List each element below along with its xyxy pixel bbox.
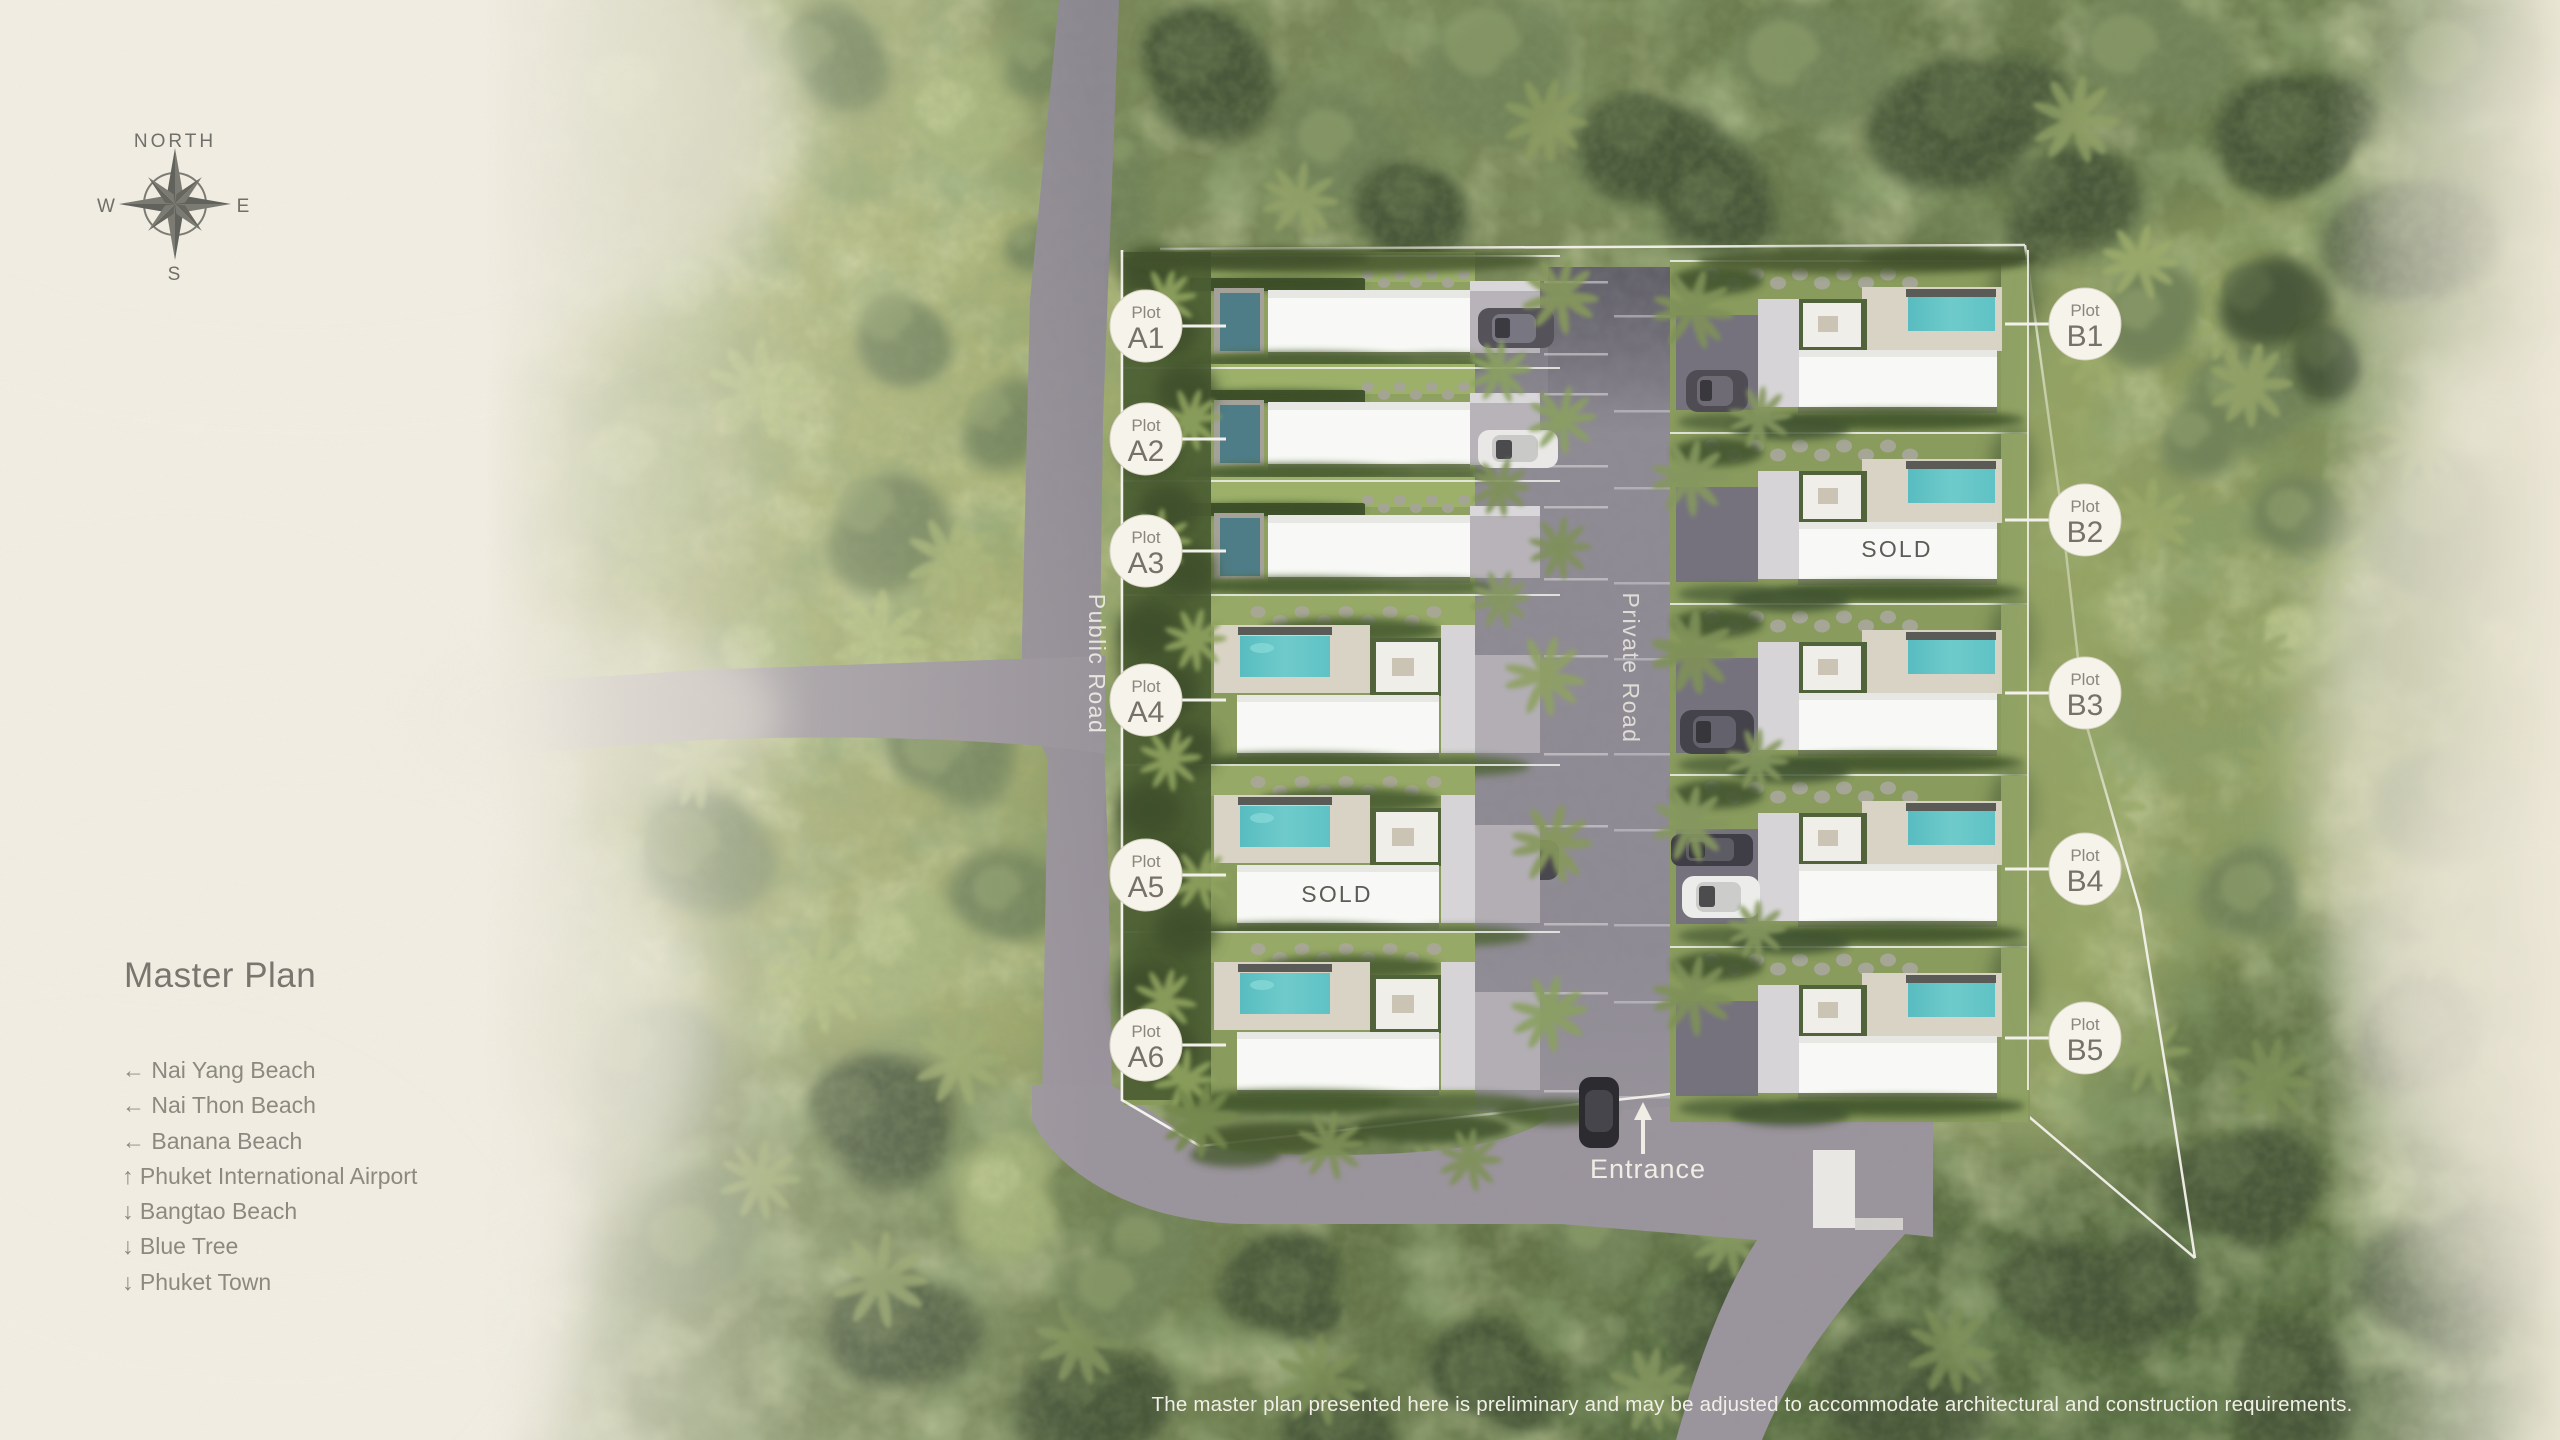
svg-text:B1: B1: [2067, 320, 2104, 353]
svg-text:Entrance: Entrance: [1590, 1154, 1706, 1184]
svg-text:A2: A2: [1128, 435, 1165, 468]
svg-text:SOLD: SOLD: [1301, 881, 1372, 907]
svg-text:B3: B3: [2067, 689, 2104, 722]
svg-text:Plot: Plot: [1131, 528, 1161, 547]
svg-text:Plot: Plot: [2070, 1015, 2100, 1034]
svg-text:↓ Bangtao Beach: ↓ Bangtao Beach: [122, 1198, 297, 1224]
svg-text:Plot: Plot: [1131, 677, 1161, 696]
svg-text:Plot: Plot: [2070, 846, 2100, 865]
svg-text:Master Plan: Master Plan: [124, 956, 316, 995]
svg-text:Plot: Plot: [2070, 497, 2100, 516]
svg-text:B4: B4: [2067, 865, 2104, 898]
svg-text:Plot: Plot: [1131, 1022, 1161, 1041]
svg-text:Plot: Plot: [1131, 852, 1161, 871]
svg-text:↓ Phuket Town: ↓ Phuket Town: [122, 1269, 271, 1295]
svg-text:Plot: Plot: [2070, 301, 2100, 320]
svg-text:A5: A5: [1128, 871, 1165, 904]
svg-text:A6: A6: [1128, 1041, 1165, 1074]
svg-text:Private Road: Private Road: [1618, 593, 1644, 744]
svg-text:B5: B5: [2067, 1034, 2104, 1067]
svg-text:S: S: [168, 264, 181, 285]
svg-text:Plot: Plot: [2070, 670, 2100, 689]
svg-text:A1: A1: [1128, 322, 1165, 355]
svg-text:Plot: Plot: [1131, 416, 1161, 435]
svg-text:Plot: Plot: [1131, 303, 1161, 322]
svg-text:The master plan presented here: The master plan presented here is prelim…: [1152, 1393, 2353, 1416]
svg-text:← Nai Thon Beach: ← Nai Thon Beach: [122, 1092, 316, 1118]
svg-text:W: W: [97, 196, 115, 217]
svg-text:↑ Phuket International Airpor: ↑ Phuket International Airport: [122, 1163, 418, 1189]
svg-text:↓ Blue Tree: ↓ Blue Tree: [122, 1233, 238, 1259]
svg-text:← Nai Yang Beach: ← Nai Yang Beach: [122, 1057, 316, 1083]
svg-text:A4: A4: [1128, 696, 1165, 729]
svg-text:NORTH: NORTH: [134, 131, 216, 152]
svg-text:SOLD: SOLD: [1861, 536, 1932, 562]
svg-text:E: E: [237, 196, 250, 217]
svg-text:B2: B2: [2067, 516, 2104, 549]
svg-text:A3: A3: [1128, 547, 1165, 580]
svg-text:← Banana Beach: ← Banana Beach: [122, 1128, 302, 1154]
svg-text:Public Road: Public Road: [1084, 594, 1110, 735]
